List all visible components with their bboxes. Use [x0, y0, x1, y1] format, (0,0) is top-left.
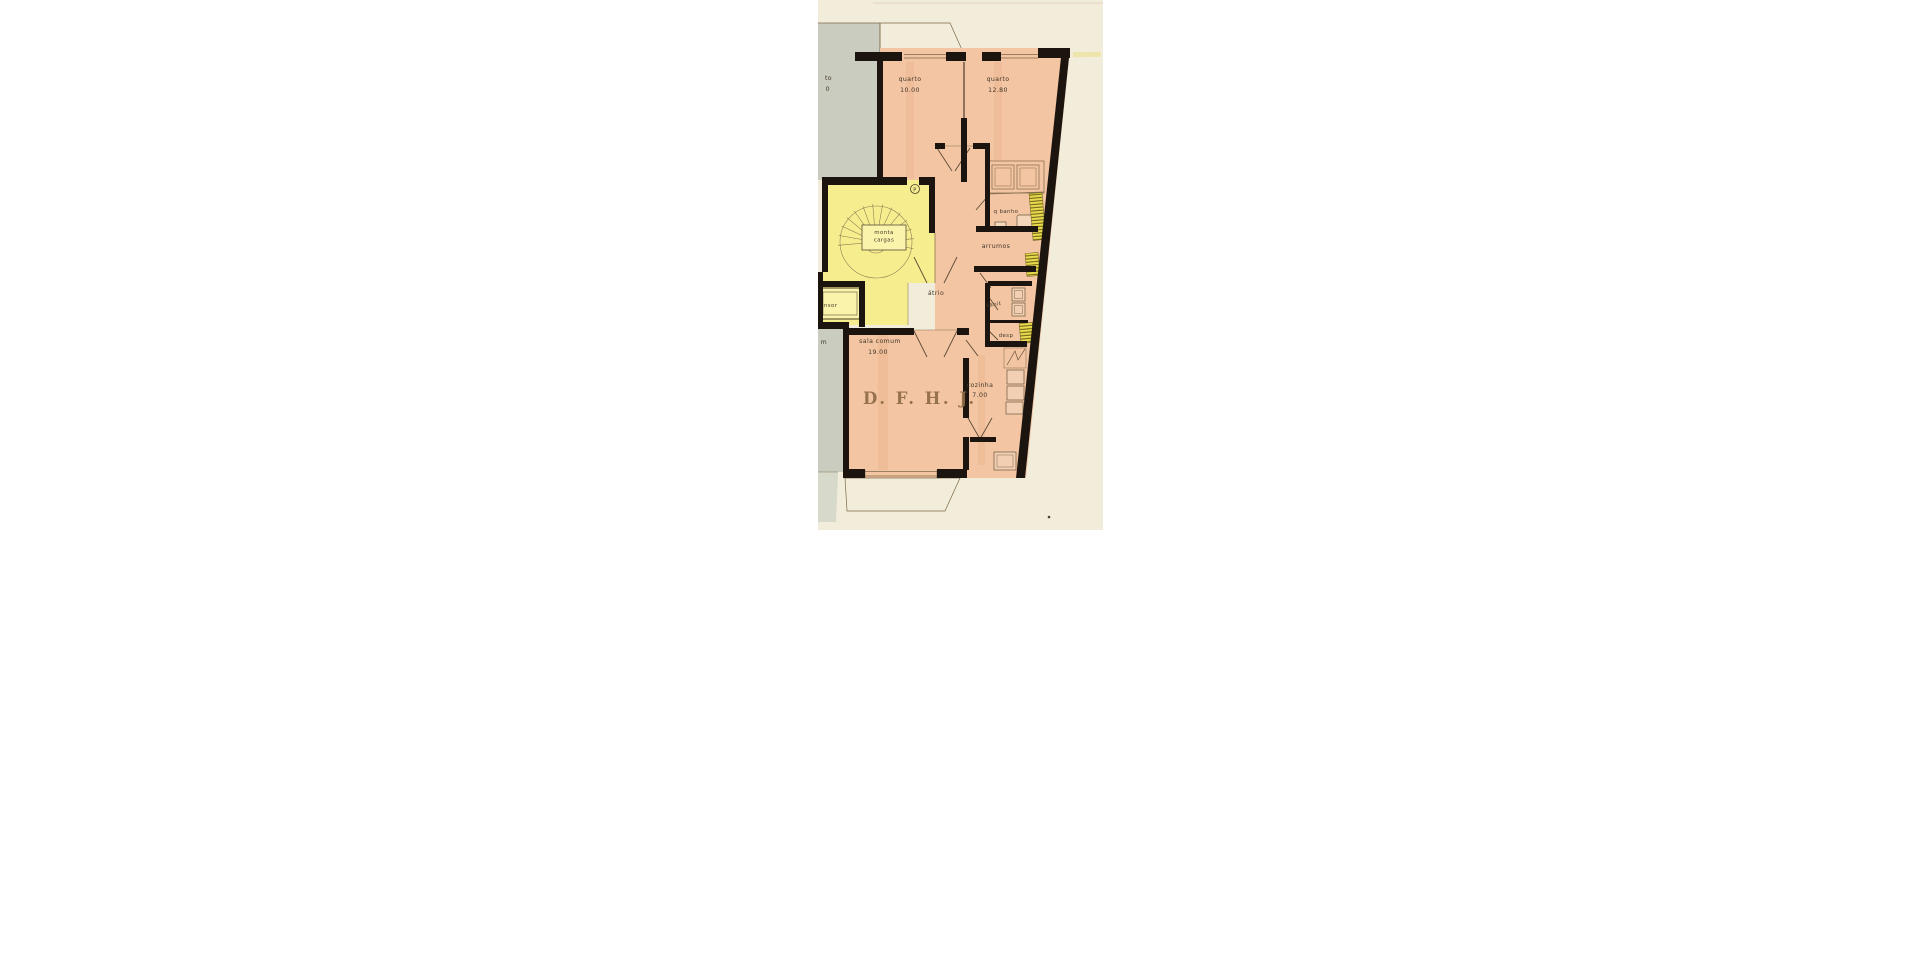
- stair-door-label: P: [913, 187, 916, 193]
- sala-comum-label: sala comum: [859, 338, 901, 345]
- quarto2-label: quarto: [987, 76, 1010, 83]
- dfhj-stamp: D. F. H. J.: [863, 389, 977, 408]
- quarto1-area: 10.00: [900, 87, 920, 94]
- floor-plan-image: monta cargas P ascensor: [818, 0, 1103, 530]
- monta-cargas-label-1: monta: [874, 230, 893, 236]
- atrio-label: átrio: [928, 289, 944, 297]
- quarto2-area: 12.80: [988, 87, 1008, 94]
- banho-label: q banho: [994, 209, 1019, 215]
- adjacent-sala-label: m: [821, 339, 827, 346]
- floor-plan-svg: monta cargas P ascensor: [818, 0, 1103, 530]
- elevator: ascensor: [818, 288, 861, 319]
- quarto1-label: quarto: [899, 76, 922, 83]
- monta-cargas-label-2: cargas: [874, 238, 894, 244]
- ink-speck: [1048, 516, 1051, 519]
- arrumos-label: arrumos: [982, 243, 1011, 250]
- desp-label: desp: [999, 333, 1014, 339]
- adjacent-quarto-area: 0: [826, 86, 830, 93]
- cozinha-label: cozinha: [967, 382, 994, 389]
- adjacent-quarto-label: to: [825, 75, 832, 82]
- sala-comum-area: 19.00: [868, 349, 888, 356]
- paper-yellow-mark: [1073, 52, 1101, 57]
- page-background: monta cargas P ascensor: [0, 0, 1920, 977]
